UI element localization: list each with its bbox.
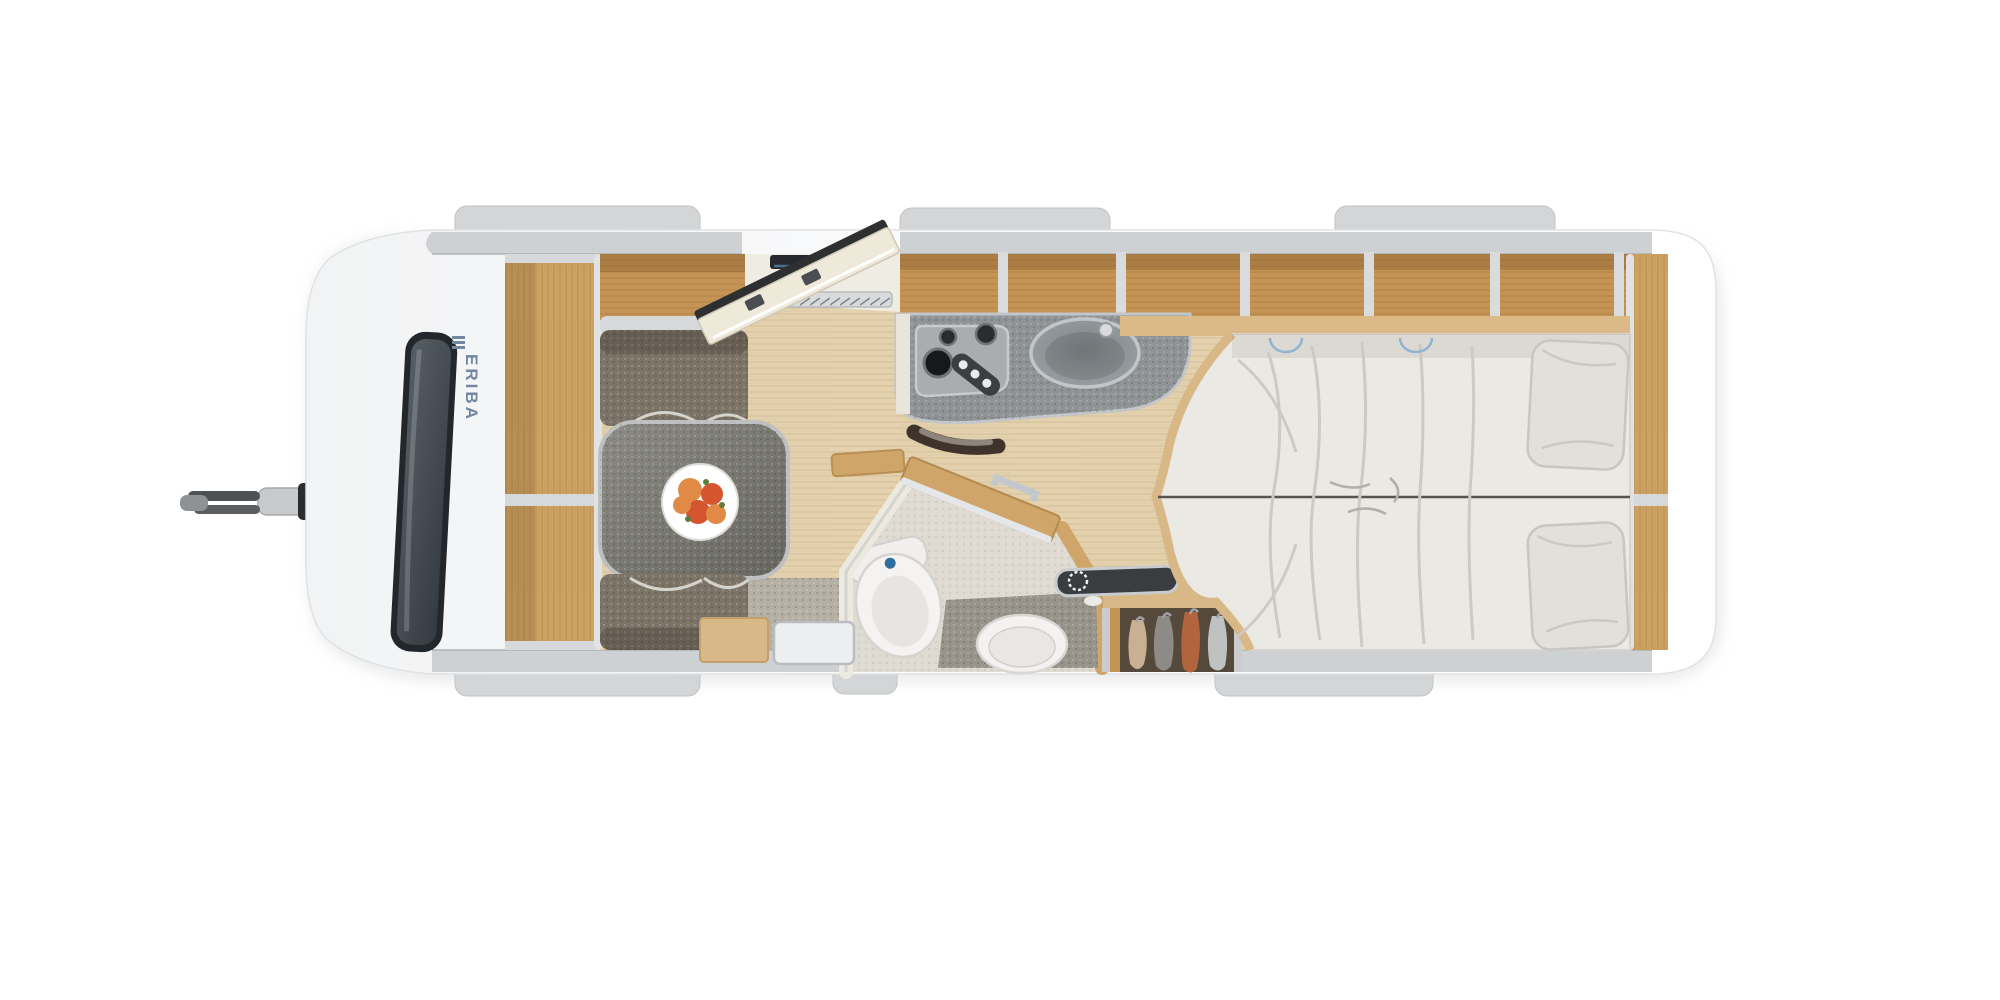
brand-logo-text: ERIBA (462, 354, 481, 422)
front-shelf-bottom-lip (505, 641, 598, 650)
hob-burner-small (940, 329, 956, 345)
locker-row-shadow (900, 254, 1652, 270)
fruit-plate (662, 464, 738, 540)
logo-bar (452, 336, 465, 339)
sink-bowl-shadow (1045, 332, 1125, 380)
faucet (1099, 323, 1113, 337)
caravan-floorplan: ERIBA (0, 0, 2000, 1000)
garment-beige (1128, 620, 1146, 669)
wardrobe-wood-side (1110, 608, 1120, 672)
shower-tray (774, 622, 854, 664)
dinette-table (600, 422, 788, 578)
washbasin-inner (989, 627, 1055, 667)
garment-gray (1154, 616, 1174, 671)
pillow-bottom (1527, 522, 1629, 651)
pillow-bottom-body (1527, 522, 1629, 651)
rear-shelf-divider (1630, 494, 1668, 506)
top-wall-strip (426, 232, 742, 254)
locker-divider (998, 252, 1008, 322)
garment-light (1208, 616, 1227, 671)
front-shelf-divider (505, 494, 598, 506)
fruit-leaf (703, 479, 709, 485)
rear-shelf-unit (1626, 254, 1668, 650)
hitch-tip (180, 495, 208, 511)
locker-divider (1240, 252, 1250, 322)
radio-panel (1056, 566, 1179, 596)
entry-step-box (700, 618, 768, 662)
hob-burner-medium (976, 324, 996, 344)
wardrobe-frame-left (1102, 608, 1110, 672)
cup-holder (1084, 596, 1102, 606)
fruit-leaf (719, 502, 725, 508)
front-shelf-top-lip (505, 254, 598, 263)
front-shelf-inner-shadow (505, 254, 535, 650)
locker-divider (1490, 252, 1500, 322)
locker-divider (1364, 252, 1374, 322)
hob-burner-large (924, 349, 952, 377)
counter-side-panel (896, 314, 910, 414)
dinette-bench-upper (600, 330, 748, 426)
logo-bar (452, 346, 465, 349)
fruit (701, 483, 723, 505)
bathroom-corner-shelf (831, 450, 904, 477)
top-wall-strip-right (900, 232, 1652, 254)
rear-shelf-grain (1630, 254, 1668, 650)
pillow-top (1527, 340, 1629, 471)
front-shelf-unit (505, 254, 602, 650)
logo-bar (452, 341, 465, 344)
locker-corner-shadow (600, 254, 745, 272)
wardrobe (1102, 608, 1242, 673)
fruit (673, 496, 691, 514)
gas-hob (916, 324, 1008, 400)
floorplan-canvas: ERIBA (0, 0, 2000, 1000)
pillow-top-body (1527, 340, 1629, 471)
garment-rust (1181, 612, 1200, 673)
washbasin-area (938, 592, 1098, 673)
fruit-leaf (685, 516, 691, 522)
locker-divider (1614, 252, 1624, 322)
locker-divider (1116, 252, 1126, 322)
